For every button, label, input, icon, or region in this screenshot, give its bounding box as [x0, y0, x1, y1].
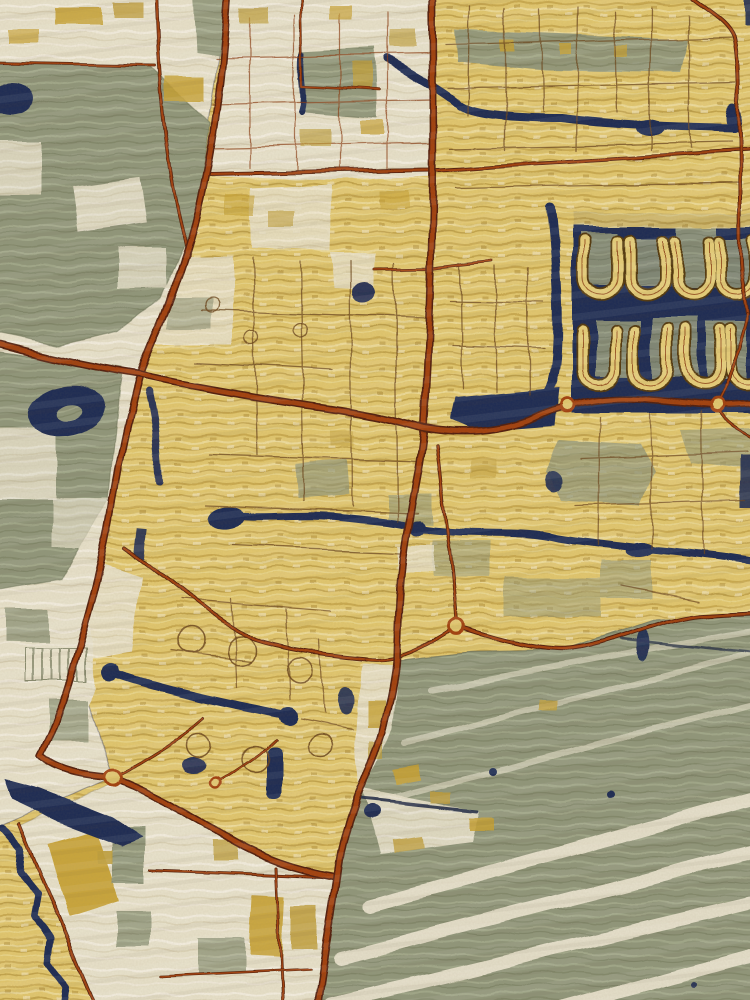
- paper-grain-overlay: [0, 0, 750, 1000]
- map-artwork: [0, 0, 750, 1000]
- map-canvas: [0, 0, 750, 1000]
